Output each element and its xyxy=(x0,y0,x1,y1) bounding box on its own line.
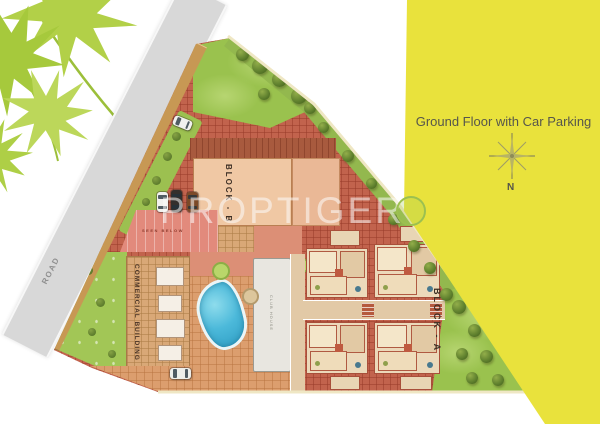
planter xyxy=(242,288,259,305)
tree xyxy=(466,372,478,384)
tree xyxy=(258,88,270,100)
bush xyxy=(108,350,116,358)
tree xyxy=(452,300,466,314)
block-a-corridor xyxy=(303,300,445,320)
apartment-unit xyxy=(306,248,368,298)
tree xyxy=(236,48,249,61)
block-a-wing xyxy=(330,230,360,246)
club-house-label: CLUB HOUSE xyxy=(269,295,274,339)
tree xyxy=(304,102,316,114)
apartment-unit xyxy=(306,322,368,374)
stair-core xyxy=(362,303,374,317)
compass-icon xyxy=(487,131,537,181)
apartment-unit xyxy=(374,322,440,374)
site-plan-canvas: ROAD BLOCK - B SEEN BELOW xyxy=(0,0,600,424)
tree xyxy=(396,196,426,226)
floor-plan-title: Ground Floor with Car Parking xyxy=(407,114,600,129)
tree xyxy=(480,350,493,363)
tree xyxy=(318,122,329,133)
bush xyxy=(152,176,161,185)
tree xyxy=(424,262,436,274)
block-a-corridor xyxy=(290,254,305,392)
bush xyxy=(96,298,105,307)
tree xyxy=(408,240,420,252)
tree xyxy=(468,324,481,337)
bush xyxy=(88,328,96,336)
paved-band xyxy=(190,138,336,160)
bush xyxy=(163,152,172,161)
tree xyxy=(252,58,268,74)
tree xyxy=(492,374,504,386)
tree xyxy=(440,288,453,301)
tree xyxy=(342,150,354,162)
tree xyxy=(456,348,468,360)
commercial-building-label: COMMERCIAL BUILDING xyxy=(133,264,140,366)
block-a-wing xyxy=(400,376,432,390)
watermark: PROPTIGER xyxy=(160,190,405,232)
tree xyxy=(366,178,377,189)
tree xyxy=(272,72,287,87)
bush xyxy=(142,198,150,206)
bush xyxy=(172,132,181,141)
planter xyxy=(212,262,230,280)
car xyxy=(170,368,191,379)
block-a-wing xyxy=(330,376,360,390)
compass-north-label: N xyxy=(507,182,514,193)
tree xyxy=(291,88,307,104)
